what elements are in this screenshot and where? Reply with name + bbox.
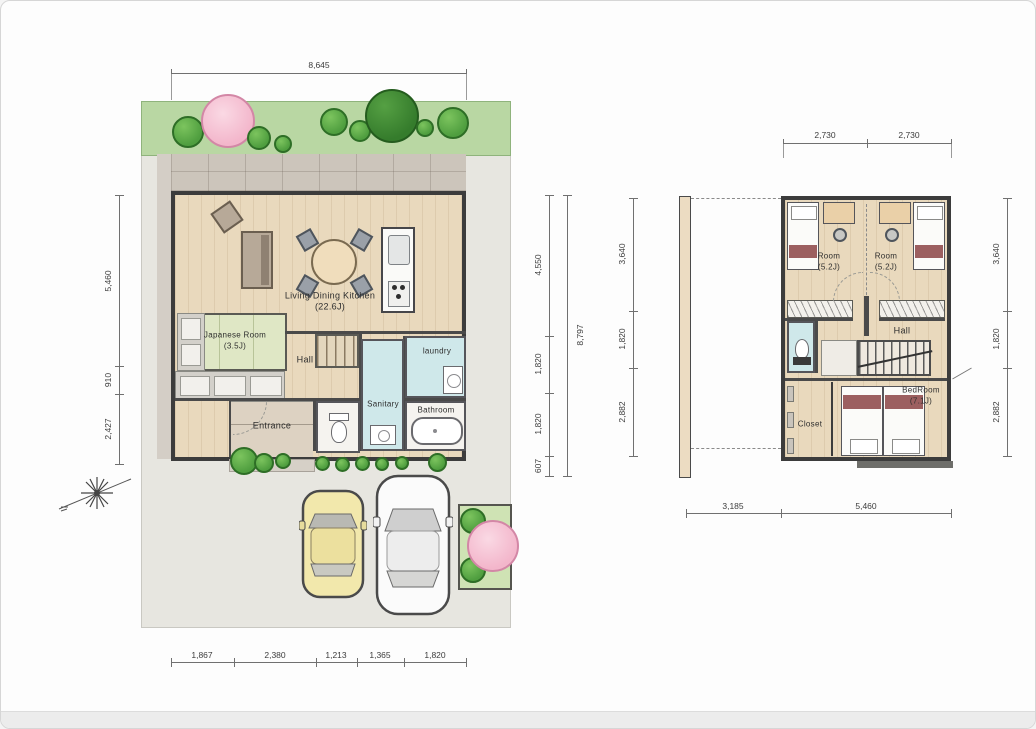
bush-icon [275,453,291,469]
tree-icon [437,107,469,139]
kitchen-stove [388,281,410,307]
bush-icon [254,453,274,473]
dim-bottom-2f: 3,185 5,460 [686,513,951,514]
toilet-room-2f [787,321,815,373]
white-car [373,473,453,617]
yellow-car [299,488,367,600]
label-japanese-room: Japanese Room [204,330,266,341]
desk-room1 [823,202,855,224]
kitchen-sink [388,235,410,265]
label-ldk-size: (22.6J) [315,302,345,313]
bush-icon [375,457,389,471]
floorplan-1f: Living Dining Kitchen (22.6J) Japanese R… [171,191,466,461]
label-room1-size: (5.2J) [818,262,840,273]
balcony-edge-2f [857,461,953,468]
dim-left-1f: 5,460 910 2,427 [119,195,120,464]
label-room2-size: (5.2J) [875,262,897,273]
bathtub [411,417,463,445]
toilet-2f [795,339,809,359]
stair-landing [821,340,857,376]
storage-1f [177,313,205,371]
label-bathroom: Bathroom [417,405,454,416]
staircase-2f [857,340,931,376]
dim-left-2f: 3,640 1,820 2,882 [633,198,634,456]
armchair [210,200,243,233]
terrace [171,154,466,191]
bed-main-left [841,386,883,456]
label-closet: Closet [798,419,822,430]
tree-icon [365,89,419,143]
dim-right-inner-1f: 4,550 1,820 1,820 607 [549,195,550,476]
tree-icon [416,119,434,137]
label-sanitary: Sanitary [367,399,399,410]
room1-door-arc [833,272,863,302]
label-bedroom-size: (7.1J) [910,396,932,407]
bedroom-leader-line [952,368,972,380]
tree-icon [320,108,348,136]
bed-room2 [913,202,945,270]
toilet-1f [331,421,347,443]
label-japanese-room-size: (3.5J) [224,341,246,352]
bush-icon [315,456,330,471]
sheet-bottom-margin [1,711,1035,728]
label-room1: Room [818,251,841,262]
label-ldk: Living Dining Kitchen [285,291,375,302]
bush-icon [335,457,350,472]
eave-line-2f [679,196,691,478]
dim-top-2f: 2,730 2,730 [783,143,951,144]
bush-icon [428,453,447,472]
staircase-1f [315,334,359,368]
dim-right-2f: 3,640 1,820 2,882 [1007,198,1008,456]
bush-icon [395,456,409,470]
washbasin [370,425,396,445]
bed-room1 [787,202,819,270]
washing-machine [443,366,463,394]
sanitary-room [361,339,404,451]
closet-room2 [879,300,945,318]
north-compass-icon [57,467,133,517]
chair-room1 [833,228,847,242]
label-hall-1f: Hall [297,355,314,366]
label-hall-2f: Hall [894,326,911,337]
sofa [241,231,273,289]
room2-door-arc [870,272,900,302]
label-entrance: Entrance [253,421,291,432]
side-path [157,154,171,459]
closet-room1 [787,300,853,318]
dining-table [311,239,357,285]
kitchen-counter [381,227,415,313]
drawing-sheet: Living Dining Kitchen (22.6J) Japanese R… [0,0,1036,729]
floorplan-2f: Room (5.2J) Room (5.2J) Hall BedRoom (7.… [781,196,951,461]
desk-room2 [879,202,911,224]
tree-icon [247,126,271,150]
tree-icon [274,135,292,153]
tree-icon [172,116,204,148]
eave-connector [691,448,781,449]
dim-right-outer-1f: 8,797 [567,195,568,476]
dim-top-1f: 8,645 [171,73,466,74]
closet-under-jr [175,371,285,399]
cherry-tree-icon [467,520,519,572]
toilet-room-1f [316,401,360,453]
bush-icon [355,456,370,471]
dim-bottom-1f: 1,867 2,380 1,213 1,365 1,820 [171,662,466,663]
label-bedroom: BedRoom [902,385,940,396]
label-room2: Room [875,251,898,262]
chair-room2 [885,228,899,242]
eave-connector [691,198,781,199]
label-laundry: laundry [423,346,451,357]
